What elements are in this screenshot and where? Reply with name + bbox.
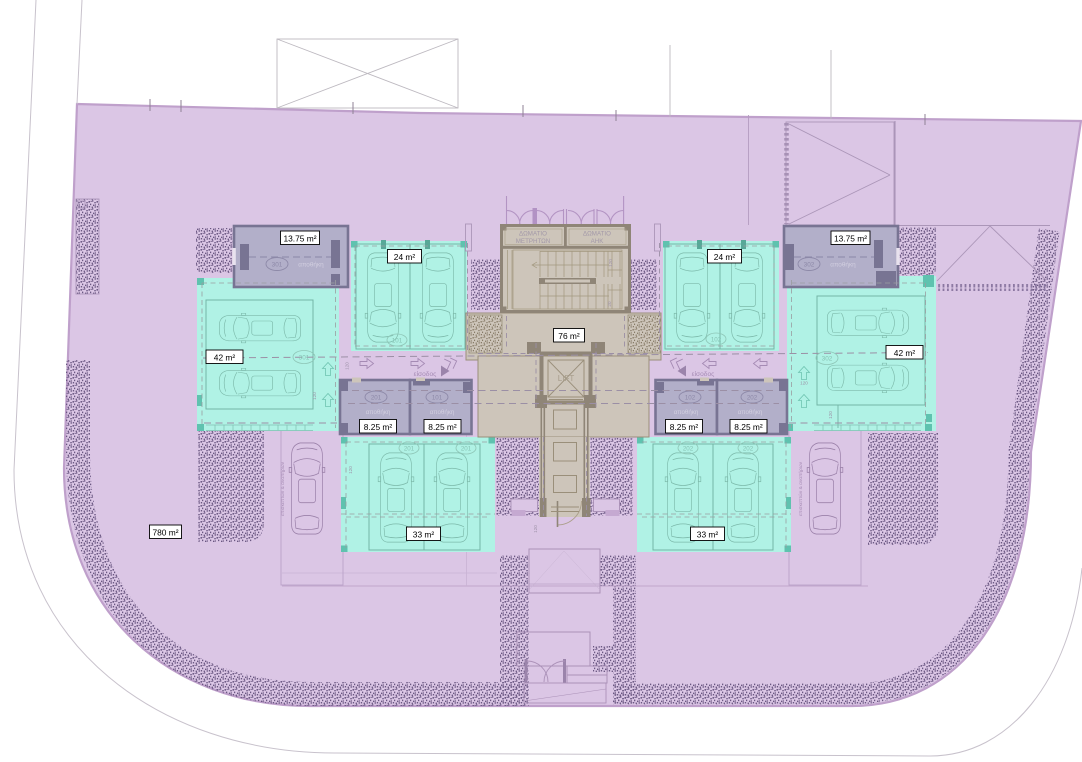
svg-text:επισκεπτών & αναπήρων: επισκεπτών & αναπήρων bbox=[279, 461, 286, 516]
svg-text:αποθήκη: αποθήκη bbox=[674, 409, 699, 416]
svg-text:202: 202 bbox=[683, 446, 694, 453]
svg-text:202: 202 bbox=[747, 395, 758, 402]
svg-text:120: 120 bbox=[348, 466, 353, 474]
svg-text:8.25 m²: 8.25 m² bbox=[734, 422, 763, 432]
svg-text:302: 302 bbox=[804, 262, 815, 269]
svg-text:76 m²: 76 m² bbox=[558, 331, 580, 341]
svg-text:8.25 m²: 8.25 m² bbox=[670, 422, 699, 432]
svg-text:301: 301 bbox=[272, 262, 283, 269]
svg-text:120: 120 bbox=[828, 411, 833, 419]
svg-text:780 m²: 780 m² bbox=[152, 527, 178, 537]
svg-text:201: 201 bbox=[404, 446, 415, 453]
svg-text:101: 101 bbox=[392, 338, 403, 345]
svg-text:24 m²: 24 m² bbox=[714, 252, 736, 262]
svg-text:201: 201 bbox=[461, 446, 472, 453]
svg-text:101: 101 bbox=[432, 395, 443, 402]
svg-text:102: 102 bbox=[685, 395, 696, 402]
svg-text:αποθήκη: αποθήκη bbox=[830, 262, 856, 269]
svg-text:33 m²: 33 m² bbox=[413, 529, 435, 539]
svg-text:αποθήκη: αποθήκη bbox=[298, 262, 324, 269]
svg-text:20: 20 bbox=[607, 301, 612, 307]
svg-text:120: 120 bbox=[608, 259, 613, 267]
svg-text:αποθήκη: αποθήκη bbox=[430, 409, 455, 416]
svg-text:13.75 m²: 13.75 m² bbox=[283, 233, 316, 243]
svg-text:είσοδος: είσοδος bbox=[692, 370, 715, 378]
svg-text:ΑΗΚ: ΑΗΚ bbox=[591, 238, 605, 245]
svg-text:102: 102 bbox=[711, 337, 722, 344]
svg-text:202: 202 bbox=[743, 446, 754, 453]
svg-text:120: 120 bbox=[533, 525, 538, 533]
svg-text:ΜΕΤΡΗΤΩΝ: ΜΕΤΡΗΤΩΝ bbox=[516, 238, 550, 245]
svg-text:120: 120 bbox=[312, 392, 317, 400]
svg-text:42 m²: 42 m² bbox=[894, 348, 916, 358]
svg-text:120: 120 bbox=[800, 381, 808, 386]
svg-text:13.75 m²: 13.75 m² bbox=[834, 233, 867, 243]
svg-text:33 m²: 33 m² bbox=[697, 529, 719, 539]
svg-text:42 m²: 42 m² bbox=[214, 352, 236, 362]
svg-text:8.25 m²: 8.25 m² bbox=[428, 422, 457, 432]
svg-text:24 m²: 24 m² bbox=[394, 252, 416, 262]
svg-text:είσοδος: είσοδος bbox=[414, 370, 437, 378]
svg-text:301: 301 bbox=[299, 355, 310, 362]
svg-text:8.25 m²: 8.25 m² bbox=[364, 422, 393, 432]
svg-text:LIFT: LIFT bbox=[558, 374, 575, 383]
svg-text:120: 120 bbox=[345, 362, 350, 370]
svg-text:αποθήκη: αποθήκη bbox=[366, 409, 391, 416]
svg-text:αποθήκη: αποθήκη bbox=[738, 409, 763, 416]
svg-text:ΔΩΜΑΤΙΟ: ΔΩΜΑΤΙΟ bbox=[583, 231, 611, 238]
svg-text:302: 302 bbox=[822, 356, 833, 363]
svg-text:201: 201 bbox=[371, 395, 382, 402]
svg-text:επισκεπτών & αναπήρων: επισκεπτών & αναπήρων bbox=[797, 461, 804, 516]
svg-text:ΔΩΜΑΤΙΟ: ΔΩΜΑΤΙΟ bbox=[519, 231, 547, 238]
